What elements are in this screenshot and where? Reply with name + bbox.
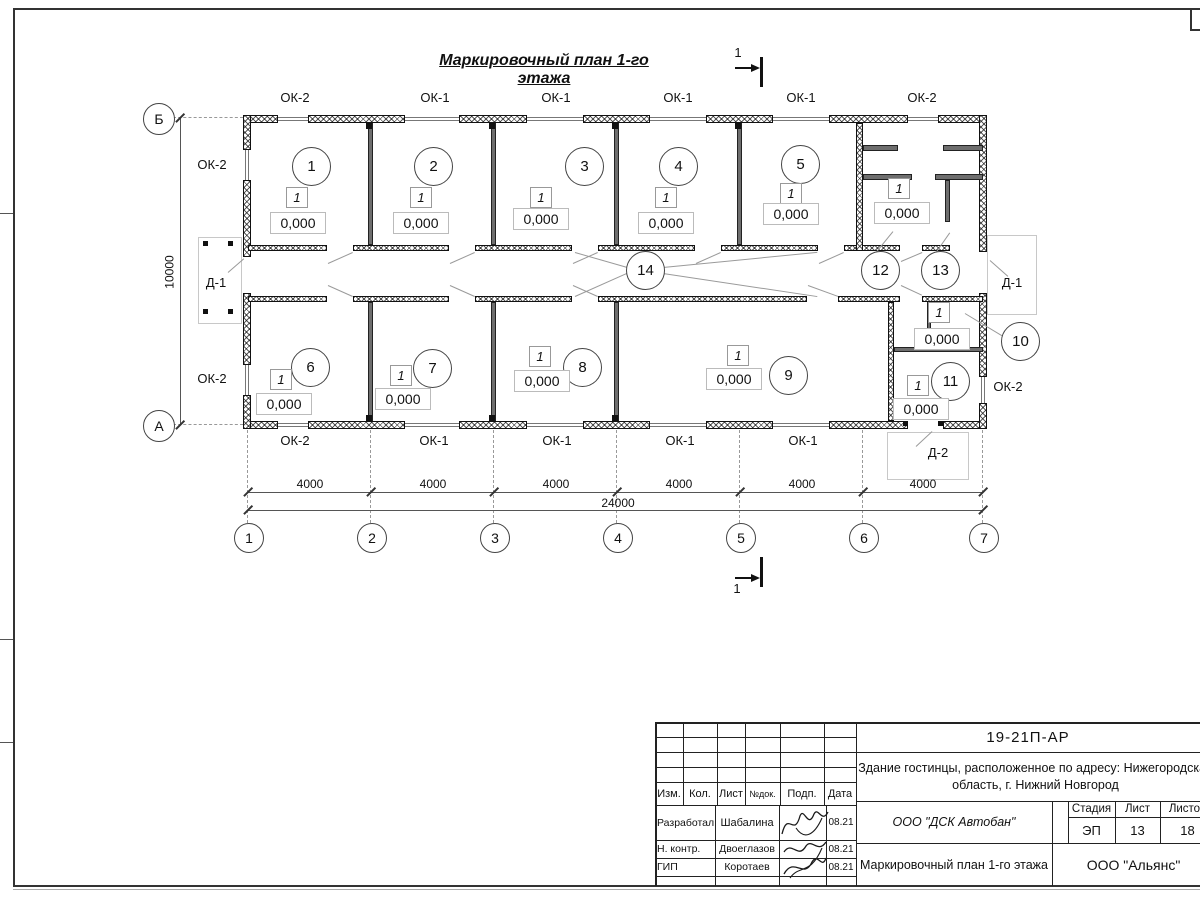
window-opening [278,115,308,123]
dimension-line [180,118,181,425]
floor-type: 1 [734,348,741,363]
axis-bubble-1: 1 [234,523,264,553]
room-number-bubble: 14 [626,251,665,290]
signer-role: Н. контр. [657,840,715,858]
door-swing-line [328,252,353,264]
leader-line [575,252,627,268]
leader-line [575,273,627,297]
room-number: 12 [872,262,889,279]
room-number: 14 [637,262,654,279]
drawing-title: Маркировочный план 1-го этажа [414,52,674,88]
wall-jamb [366,415,372,421]
axis-label: 4 [614,530,622,546]
titleblock-stage-value: ЭП [1068,817,1115,843]
signer-name: Коротаев [715,858,779,876]
exterior-wall [829,421,908,429]
porch-column [203,241,208,246]
floor-type-mark: 1 [390,365,412,386]
window-opening [405,421,459,429]
room-number-bubble: 9 [769,356,808,395]
dimension-label: 4000 [408,477,458,491]
titleblock-col-list: Лист [717,782,745,805]
floor-type-mark: 1 [410,187,432,208]
axis-bubble-6: 6 [849,523,879,553]
partition-wall [491,123,496,245]
floor-type-mark: 1 [907,375,929,396]
frame-fold-tick [0,213,13,214]
axis-line [173,424,243,425]
elevation-value: 0,000 [648,215,683,231]
window-label-top: ОК-1 [658,90,698,105]
exterior-wall [706,421,773,429]
room-number: 11 [943,373,959,390]
frame-bottom-shadow [13,889,1200,890]
wall-jamb [735,123,741,129]
partition-wall [737,123,742,245]
dimension-label: 24000 [588,496,648,510]
elevation-value: 0,000 [884,205,919,221]
corridor-wall [248,296,327,302]
window-opening [979,377,987,403]
elevation-value: 0,000 [523,211,558,227]
axis-bubble-7: 7 [969,523,999,553]
dimension-label: 10000 [163,235,177,310]
exterior-wall [583,115,650,123]
room-number: 13 [932,262,949,279]
room-number-bubble: 4 [659,147,698,186]
titleblock-line [655,737,856,738]
titleblock-col-izm: Изм. [655,782,683,805]
elevation-value: 0,000 [385,391,420,407]
signer-date: 08.21 [826,858,856,876]
room-number: 8 [578,359,586,376]
window-label-bottom: ОК-2 [275,433,315,448]
exterior-wall [979,293,987,377]
elevation-value: 0,000 [773,206,808,222]
exterior-wall [308,115,405,123]
axis-label: 2 [368,530,376,546]
corridor-wall [248,245,327,251]
window-label-left: ОК-2 [192,157,232,172]
titleblock-stage-label: Стадия [1068,801,1115,817]
floor-type-mark: 1 [270,369,292,390]
room-number-bubble: 5 [781,145,820,184]
signer-name: Двоеглазов [715,840,779,858]
titleblock-col-kol: Кол. [683,782,717,805]
elevation-mark: 0,000 [270,212,326,234]
floor-type: 1 [787,186,794,201]
axis-bubble-4: 4 [603,523,633,553]
partition-wall [945,180,950,222]
door-swing-line [819,252,844,264]
window-label-bottom: ОК-1 [414,433,454,448]
window-label-top: ОК-2 [275,90,315,105]
door-label-bottom: Д-2 [918,445,958,460]
window-opening [243,365,251,395]
exterior-wall [979,403,987,429]
room-number: 1 [307,158,315,175]
window-label-top: ОК-2 [902,90,942,105]
room-number: 7 [428,360,436,377]
section-label: 1 [730,581,744,596]
floor-type: 1 [895,181,902,196]
axis-label: А [154,418,163,434]
exterior-wall [243,115,251,150]
axis-bubble-b: Б [143,103,175,135]
exterior-wall [706,115,773,123]
elevation-mark: 0,000 [874,202,930,224]
floor-type-mark: 1 [530,187,552,208]
frame-corner-stamp [1190,29,1200,31]
elevation-value: 0,000 [903,401,938,417]
wall-jamb [612,415,618,421]
window-opening [650,421,706,429]
window-label-bottom: ОК-1 [537,433,577,448]
frame-corner-stamp [1190,10,1192,30]
door-label-right: Д-1 [992,275,1032,290]
wall-jamb [366,123,372,129]
floor-type-mark: 1 [888,178,910,199]
elevation-mark: 0,000 [638,212,694,234]
door-jamb [903,421,908,426]
frame-top [13,8,1200,10]
section-mark-top [760,57,763,87]
dimension-label: 4000 [654,477,704,491]
titleblock-line [655,767,856,768]
floor-type: 1 [417,190,424,205]
window-opening [527,421,583,429]
window-label-bottom: ОК-1 [783,433,823,448]
room-number: 5 [796,156,804,173]
window-opening [773,115,829,123]
dimension-label: 4000 [777,477,827,491]
elevation-value: 0,000 [924,331,959,347]
elevation-value: 0,000 [716,371,751,387]
section-arrow-icon [751,574,760,582]
project-name-line2: область, г. Нижний Новгород [952,777,1119,794]
floor-type-mark: 1 [780,183,802,204]
section-arrow-icon [751,64,760,72]
axis-label: 1 [245,530,253,546]
axis-label: 5 [737,530,745,546]
dimension-label: 4000 [285,477,335,491]
leader-line [663,252,817,268]
floor-type: 1 [536,349,543,364]
window-opening [773,421,829,429]
window-opening [908,115,938,123]
signer-date: 08.21 [826,805,856,840]
partition-wall [943,145,983,151]
titleblock-sheets-label: Листов [1160,801,1200,817]
room-number-bubble: 7 [413,349,452,388]
partition-wall [935,174,983,180]
partition-wall [491,302,496,421]
axis-line [173,117,243,118]
signer-date: 08.21 [826,840,856,858]
project-name-line1: Здание гостинцы, расположенное по адресу… [858,760,1200,777]
room-number-bubble: 11 [931,362,970,401]
partition-wall [614,123,619,245]
exterior-wall [243,293,251,365]
porch-column [228,309,233,314]
floor-type: 1 [397,368,404,383]
room-number-bubble: 3 [565,147,604,186]
elevation-mark: 0,000 [393,212,449,234]
wall-jamb [489,123,495,129]
room-number: 3 [580,158,588,175]
door-swing-line [901,252,923,262]
titleblock-sheet-label: Лист [1115,801,1160,817]
partition-wall [368,123,373,245]
exterior-wall [308,421,405,429]
section-mark-bottom [760,557,763,587]
elevation-mark: 0,000 [893,398,949,420]
signature [778,804,830,840]
corridor-wall [475,296,572,302]
titleblock-col-ndok: №док. [745,782,780,805]
titleblock-sheet-title: Маркировочный план 1-го этажа [856,843,1052,886]
axis-bubble-5: 5 [726,523,756,553]
floor-type-mark: 1 [655,187,677,208]
drawing-sheet: Маркировочный план 1-го этажа [0,0,1200,900]
frame-fold-tick [0,742,13,743]
door-swing-line [901,285,922,296]
elevation-mark: 0,000 [513,208,569,230]
floor-type: 1 [914,378,921,393]
partition-wall [614,302,619,421]
floor-type: 1 [537,190,544,205]
titleblock-contractor: ООО "ДСК Автобан" [856,801,1052,843]
corridor-wall [353,245,449,251]
window-opening [405,115,459,123]
elevation-value: 0,000 [266,396,301,412]
titleblock-col-data: Дата [824,782,856,805]
exterior-wall [459,115,527,123]
room-number: 4 [674,158,682,175]
room-number: 2 [429,158,437,175]
room-number-bubble: 13 [921,251,960,290]
window-label-bottom: ОК-1 [660,433,700,448]
axis-label: Б [154,111,163,127]
dimension-line [248,510,983,511]
corridor-wall [721,245,818,251]
porch-column [203,309,208,314]
door-label-left: Д-1 [196,275,236,290]
elevation-value: 0,000 [524,373,559,389]
floor-type: 1 [662,190,669,205]
elevation-mark: 0,000 [514,370,570,392]
titleblock-organization: ООО "Альянс" [1052,843,1200,886]
door-swing-line [328,285,353,297]
elevation-mark: 0,000 [763,203,819,225]
signer-name: Шабалина [715,805,779,840]
room-number-bubble: 12 [861,251,900,290]
window-opening [278,421,308,429]
section-label: 1 [731,45,745,60]
room-number: 9 [784,367,792,384]
axis-label: 6 [860,530,868,546]
frame-left [13,8,15,886]
axis-bubble-2: 2 [357,523,387,553]
floor-type-mark: 1 [727,345,749,366]
dimension-label: 4000 [531,477,581,491]
floor-type-mark: 1 [529,346,551,367]
titleblock-line [655,752,856,753]
partition-wall [368,302,373,421]
axis-label: 7 [980,530,988,546]
elevation-mark: 0,000 [706,368,762,390]
floor-type-mark: 1 [928,302,950,323]
titleblock-sheets-value: 18 [1160,817,1200,843]
window-opening [650,115,706,123]
partition-wall [863,145,898,151]
signer-role: ГИП [657,858,715,876]
exterior-wall [583,421,650,429]
signer-role: Разработал [657,805,715,840]
frame-fold-tick [0,639,13,640]
room-number: 10 [1012,333,1029,350]
corridor-wall [844,245,900,251]
floor-type-mark: 1 [286,187,308,208]
room-number-bubble: 1 [292,147,331,186]
elevation-value: 0,000 [280,215,315,231]
exterior-wall [243,395,251,429]
elevation-value: 0,000 [403,215,438,231]
wall-jamb [612,123,618,129]
interior-bearing-wall [856,123,863,251]
titleblock-sheet-value: 13 [1115,817,1160,843]
exterior-wall [979,115,987,252]
wall-jamb [489,415,495,421]
window-label-top: ОК-1 [536,90,576,105]
axis-label: 3 [491,530,499,546]
exterior-wall [459,421,527,429]
dimension-label: 4000 [898,477,948,491]
titleblock-col-podp: Подп. [780,782,824,805]
elevation-mark: 0,000 [256,393,312,415]
corridor-wall [598,296,807,302]
door-swing-line [450,252,475,264]
window-label-top: ОК-1 [781,90,821,105]
axis-bubble-a: А [143,410,175,442]
window-label-right: ОК-2 [988,379,1028,394]
corridor-wall [475,245,572,251]
door-jamb [938,421,943,426]
room-number-bubble: 10 [1001,322,1040,361]
window-opening [527,115,583,123]
floor-type: 1 [935,305,942,320]
window-opening [243,150,251,180]
titleblock-project-name: Здание гостинцы, расположенное по адресу… [856,752,1200,801]
room-number: 6 [306,359,314,376]
porch-column [228,241,233,246]
room-number-bubble: 6 [291,348,330,387]
window-label-left: ОК-2 [192,371,232,386]
door-swing-line [450,285,475,297]
leader-line [663,273,817,297]
axis-bubble-3: 3 [480,523,510,553]
elevation-mark: 0,000 [914,328,970,350]
elevation-mark: 0,000 [375,388,431,410]
titleblock-doc-number: 19-21П-АР [856,722,1200,752]
room-number-bubble: 2 [414,147,453,186]
signature [780,838,828,880]
floor-type: 1 [293,190,300,205]
floor-type: 1 [277,372,284,387]
exterior-wall [829,115,908,123]
window-label-top: ОК-1 [415,90,455,105]
